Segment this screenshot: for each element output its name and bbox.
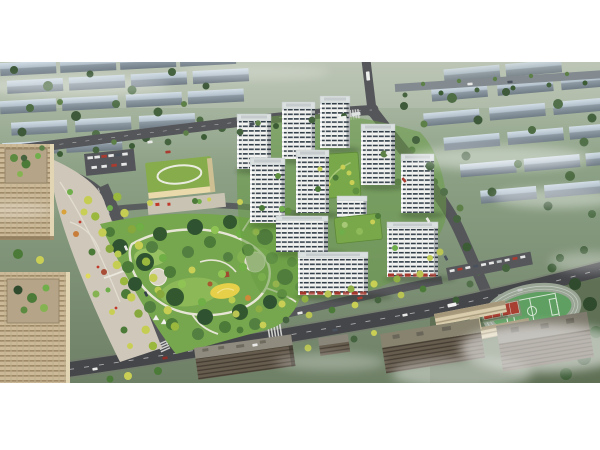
apartment-slab <box>298 252 368 295</box>
apartment-tower <box>320 96 350 148</box>
apartment-tower <box>296 150 329 213</box>
screenshot-canvas <box>0 0 600 450</box>
road-vertical-north <box>366 62 372 110</box>
roof-garden-south <box>334 213 382 244</box>
office-tower-south <box>0 272 70 383</box>
apartment-tower <box>250 158 285 223</box>
apartment-slab <box>276 216 328 252</box>
aerial-rendering <box>0 62 600 383</box>
